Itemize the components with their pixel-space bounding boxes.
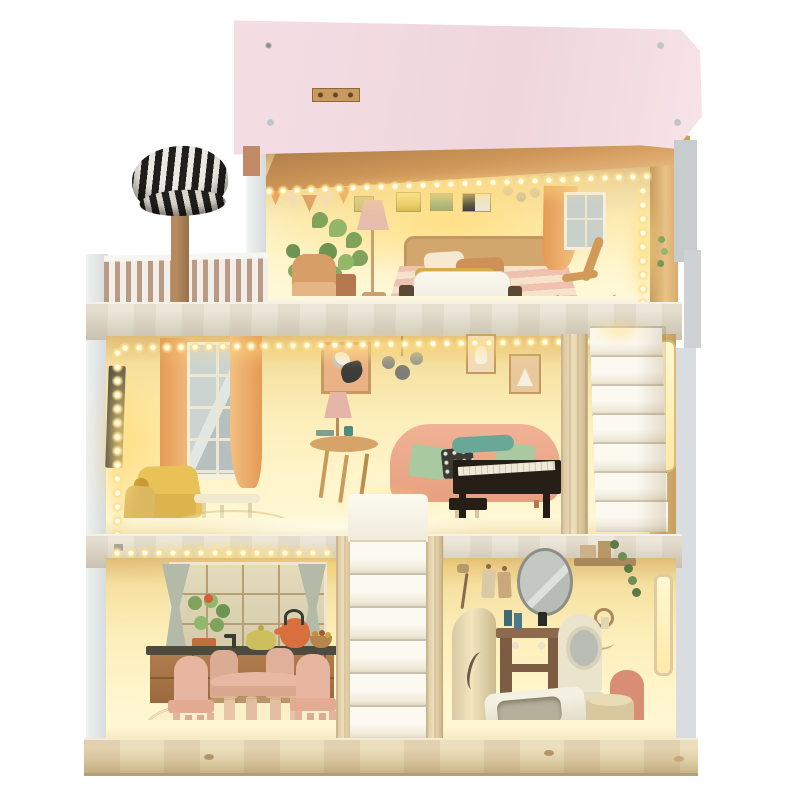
stair-step — [350, 641, 426, 674]
towel — [497, 572, 511, 599]
trailing-plant — [610, 536, 644, 600]
tree-trunk — [171, 204, 189, 310]
stair-step — [595, 473, 667, 503]
stair-step — [591, 357, 663, 387]
center-staircase — [348, 494, 430, 744]
right-staircase — [588, 326, 666, 540]
wall-led-strip — [110, 346, 125, 536]
stair-step — [350, 575, 426, 608]
stair-step — [350, 608, 426, 641]
table-lamp — [324, 392, 358, 440]
hanging-towels — [482, 564, 518, 600]
faucet — [224, 634, 242, 650]
wall-print — [430, 193, 453, 211]
living-room-curtain-right — [230, 336, 262, 488]
vanity-shelf — [502, 664, 560, 672]
bear-picture — [509, 354, 541, 394]
stair-step — [594, 444, 666, 474]
piano-stool — [449, 498, 487, 510]
chandelier-globes — [382, 356, 395, 369]
roof-screws — [265, 42, 272, 49]
kitchen-flower — [204, 594, 213, 603]
toiletry-bottles — [504, 610, 512, 626]
stair-step — [350, 707, 426, 740]
roof-hinge-plate — [312, 88, 360, 102]
right-wall-panel — [684, 250, 701, 348]
orange-kettle — [280, 618, 310, 648]
wall-print — [396, 192, 421, 212]
dollhouse-product-photo — [0, 0, 800, 800]
pink-roof — [234, 14, 702, 156]
lit-window-slot — [654, 574, 673, 676]
led-strip-vertical — [636, 184, 650, 306]
roof-eave-tab — [243, 146, 260, 176]
stair-step — [590, 328, 662, 358]
stair-step — [350, 542, 426, 575]
toilet-seat — [588, 694, 632, 706]
piano-keys — [458, 461, 555, 476]
stair-landing — [348, 494, 428, 542]
tree-striped-canopy — [130, 143, 230, 216]
vanity-knobs — [512, 642, 519, 649]
rocker-seat — [562, 270, 599, 283]
teapot — [246, 630, 276, 650]
soap-pump — [538, 612, 547, 626]
stair-step — [593, 415, 665, 445]
right-wall-panel — [674, 140, 697, 262]
towel — [481, 570, 495, 599]
stair-step — [350, 674, 426, 707]
wall-print — [462, 193, 491, 212]
stair-step — [596, 502, 668, 532]
sofa-blanket — [452, 434, 515, 453]
wood-post — [561, 334, 588, 540]
floor-lamp — [356, 200, 392, 300]
rocking-chair-painted — [556, 236, 622, 304]
round-mirror — [566, 626, 602, 670]
table-legs — [319, 450, 330, 498]
stair-step — [592, 386, 664, 416]
base-plank — [84, 738, 698, 776]
